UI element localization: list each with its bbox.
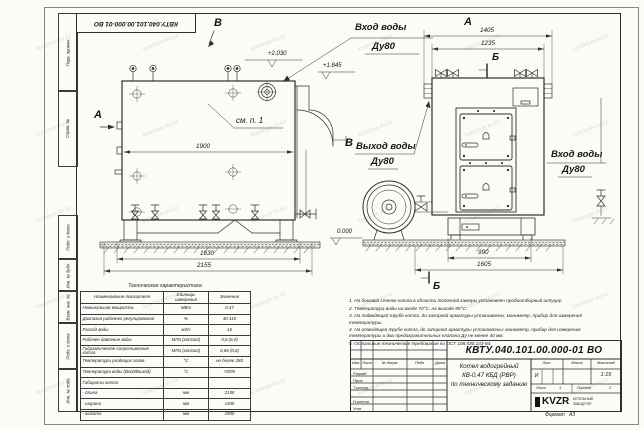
cell-units: МПа (кгс/см2) [164, 346, 209, 357]
elevation-1845: +1.845 [323, 63, 342, 69]
boiler-body [122, 81, 295, 220]
outlet-dn-label: Ду80 [371, 156, 394, 167]
foundation-front [363, 240, 565, 251]
dim-text-1405: 1405 [480, 27, 494, 34]
kvzr-logo-icon [535, 397, 540, 407]
front-flanges [424, 84, 552, 98]
table-row: - ширинамм1405 [81, 399, 251, 410]
row-label-razrab: Разраб. [353, 371, 367, 376]
row-label-prov: Пров. [353, 378, 364, 383]
logo-subtext-1: КОТЕЛЬНЫЙ [573, 397, 593, 401]
boiler-base [120, 220, 297, 243]
section-label-b-top: Б [492, 52, 499, 63]
sheets-value: 2 [609, 386, 611, 390]
logo-subtext-2: ЗАВОД РЭП [573, 402, 591, 406]
view-arrow-a [100, 125, 115, 130]
cell-name: - ширина [81, 399, 164, 410]
elevation-2030: +2.030 [268, 51, 287, 57]
inlet-dn-label-main: Ду80 [372, 41, 395, 52]
view-label-a-front: А [464, 16, 472, 28]
dim-text-1900: 1900 [196, 143, 210, 150]
col-header-izm: Изм. [352, 361, 360, 365]
format-label: Формат [545, 412, 565, 418]
bottom-valves [131, 205, 259, 219]
dim-text-990: 990 [478, 249, 489, 256]
table-row: - длинамм2155 [81, 388, 251, 399]
sheets-label: Листов [577, 386, 591, 390]
col-header-list: Лист [362, 361, 372, 365]
col-header-podp: Подп. [415, 361, 425, 365]
cell-name: Гидравлическое сопротивление котла [81, 346, 164, 357]
col-header-dokum: № докум. [382, 361, 399, 365]
cell-value: 0,06 (0,6) [209, 346, 251, 357]
table-row: Номинальная мощностьМВт0,47 [81, 304, 251, 315]
side-stub-valve [295, 209, 316, 219]
col-header: Значение [209, 292, 251, 304]
dim-1235 [432, 44, 544, 78]
row-label-utv: Утв. [353, 406, 362, 411]
dim-1900 [124, 150, 293, 153]
scale-header: Масштаб [597, 361, 615, 365]
note-item: 2. Температура воды на входе 70°С, на вы… [349, 306, 614, 312]
format-value: А3 [569, 412, 575, 418]
cell-units: МВт [164, 304, 209, 315]
blower-fan [363, 181, 448, 243]
kvzr-logo-text: KVZR [542, 396, 569, 407]
section-label-b-bottom: Б [433, 281, 440, 292]
mass-header: Масса [571, 361, 582, 365]
cell-value: 0,47 [209, 304, 251, 315]
cell-units: м3/ч [164, 325, 209, 336]
cell-name: Температура уходящих газов [81, 356, 164, 367]
cell-name: Температура воды (Вход/Выход) [81, 367, 164, 378]
dim-text-1605: 1605 [477, 261, 491, 268]
cell-units: МПа (кгс/см2) [164, 335, 209, 346]
sheet-label: Лист [536, 386, 546, 390]
table-row: Расход водым3/ч16 [81, 325, 251, 336]
inlet-dn-label-front: Ду80 [562, 164, 585, 175]
see-note-label: см. п. 1 [236, 116, 263, 125]
doc-title-line2: КВ-0,47 КБД (РВР) [462, 372, 516, 379]
dim-1405 [424, 30, 552, 84]
drawing-sheet: kotelnye-kv.kzkotelnye-kv.kzkotelnye-kv.… [0, 0, 644, 430]
inlet-pipe-valve [592, 98, 614, 224]
cell-units: мм [164, 399, 209, 410]
lit-value: И [535, 373, 539, 379]
sheet-value: 1 [559, 386, 561, 390]
view-label-v-right: В [345, 137, 353, 149]
table-row: Рабочее давление водыМПа (кгс/см2)0,6 (6… [81, 335, 251, 346]
cell-value [209, 378, 251, 389]
cell-units [164, 378, 209, 389]
title-block: КВТУ.040.101.00.000-01 ВО Изм. Лист № до… [350, 340, 622, 412]
view-label-a-main: А [94, 109, 102, 121]
cell-value: 16 [209, 325, 251, 336]
cell-name: Диапазон рабочего регулирования [81, 314, 164, 325]
boiler-side-view [100, 31, 433, 275]
control-panel [513, 88, 538, 106]
view-label-v-top: В [214, 17, 222, 29]
cell-units: мм [164, 388, 209, 399]
chimney [295, 86, 346, 218]
cell-name: - длина [81, 388, 164, 399]
note-item: 3. На подводящей трубе котла, до запорно… [349, 313, 614, 325]
cell-value: 2155 [209, 388, 251, 399]
cell-value: 40-110 [209, 314, 251, 325]
table-row: Температура воды (Вход/Выход)°С70/95 [81, 367, 251, 378]
dim-1605 [415, 246, 563, 274]
table-row: Гидравлическое сопротивление котлаМПа (к… [81, 346, 251, 357]
outlet-water-label: Выход воды [356, 141, 416, 152]
col-header: Единицы измерения [164, 292, 209, 304]
view-arrow-v [208, 31, 214, 47]
row-label-nkontr: Н.контр. [353, 399, 370, 404]
cell-name: Номинальная мощность [81, 304, 164, 315]
section-mark-b-top [479, 64, 487, 77]
cell-value: 1405 [209, 399, 251, 410]
cell-units: мм [164, 409, 209, 420]
note-item: 1. На боковой стенке котла в области топ… [349, 298, 614, 304]
furnace-doors [456, 108, 516, 212]
front-base [448, 218, 535, 242]
cell-name: Габариты котла [81, 378, 164, 389]
table-row: Температура уходящих газов°Сне более 280 [81, 356, 251, 367]
table-row: Габариты котла [81, 378, 251, 389]
cell-name: Расход воды [81, 325, 164, 336]
elevation-0000: 0.000 [337, 229, 352, 235]
spec-table-title: Техническая характеристика [80, 283, 250, 289]
elevation-marks [245, 60, 362, 245]
cell-value: 1900 [209, 409, 251, 420]
title-block-doc-number: КВТУ.040.101.00.000-01 ВО [466, 345, 603, 356]
cell-value: 0,6 (6,0) [209, 335, 251, 346]
table-row: Наименование показателя Единицы измерени… [81, 292, 251, 304]
dim-text-1235: 1235 [481, 40, 495, 47]
cell-name: - высота [81, 409, 164, 420]
top-valves [130, 65, 240, 81]
doc-title-line1: Котел водогрейный [460, 363, 519, 370]
format-note: Формат А3 [520, 412, 600, 418]
dim-text-1630: 1630 [200, 250, 214, 257]
cell-units: % [164, 314, 209, 325]
front-body [432, 78, 544, 215]
cell-name: Рабочее давление воды [81, 335, 164, 346]
cell-units: °С [164, 356, 209, 367]
axis-marks [129, 85, 241, 216]
note-item: 4. На отводящей трубе котла, до запорной… [349, 327, 614, 339]
cell-value: 70/95 [209, 367, 251, 378]
col-header-data: Дата [435, 361, 445, 365]
inlet-water-label-main: Вход воды [355, 22, 406, 33]
section-mark-b-bottom [421, 272, 429, 283]
inlet-flange [257, 82, 277, 102]
inlet-water-label-front: Вход воды [551, 149, 602, 160]
row-label-tkontr: Т.контр. [353, 385, 369, 390]
table-row: Диапазон рабочего регулирования%40-110 [81, 314, 251, 325]
doc-title-line3: по техническому заданию [451, 381, 527, 388]
lit-header: Лит. [543, 361, 552, 365]
cell-units: °С [164, 367, 209, 378]
col-header: Наименование показателя [81, 292, 164, 304]
dim-text-2155: 2155 [197, 262, 211, 269]
table-row: - высотамм1900 [81, 409, 251, 420]
spec-table: Наименование показателя Единицы измерени… [80, 291, 251, 421]
inlet-leader [283, 38, 433, 82]
scale-value: 1:15 [601, 372, 612, 378]
cell-value: не более 280 [209, 356, 251, 367]
